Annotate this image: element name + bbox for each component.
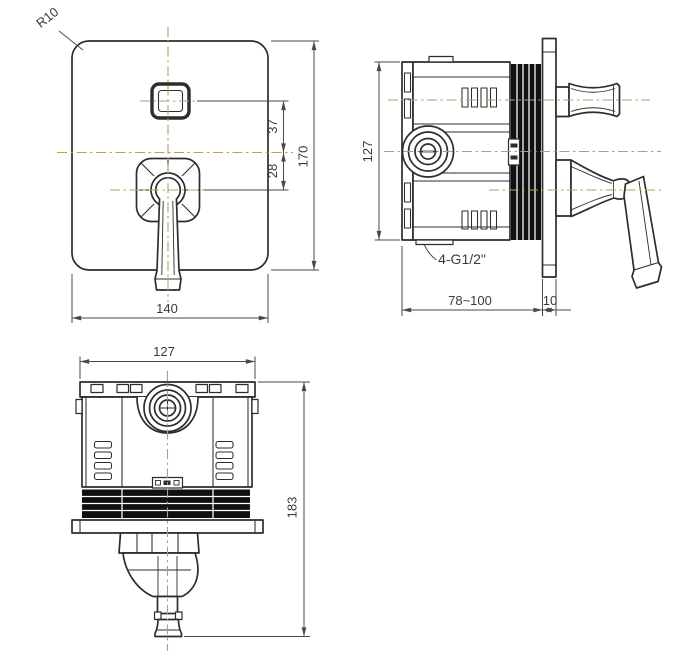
plate-mark: [511, 144, 518, 148]
corner-radius-label: R10: [33, 4, 61, 31]
wall-plate-side: [543, 39, 557, 278]
rail-tab: [131, 385, 143, 393]
thread-leader-line: [424, 245, 437, 261]
bottom-view: 127 183: [72, 344, 310, 651]
lever-tip-cup: [155, 620, 182, 637]
handle-stem-side: [556, 160, 571, 216]
thread-label: 4-G1/2": [438, 251, 486, 267]
rail-tab: [236, 385, 248, 393]
button-stem-side: [556, 87, 569, 117]
lever-tip-tab: [155, 612, 162, 620]
plate-thickness-label: 10: [543, 293, 557, 308]
side-notch: [252, 400, 258, 414]
bottom-width-label: 127: [153, 344, 175, 359]
offset-upper-label: 37: [265, 119, 280, 133]
body-top-tab: [429, 57, 453, 63]
front-view: 140 170 37 28 R10: [33, 4, 319, 323]
front-width-label: 140: [156, 301, 178, 316]
body-bottom-tab: [416, 240, 453, 245]
handle-cone-bottom: [123, 553, 198, 597]
technical-drawing-canvas: 140 170 37 28 R10: [0, 0, 700, 656]
rail-tab: [210, 385, 222, 393]
technical-drawing-page: 140 170 37 28 R10: [0, 0, 700, 656]
rail-tab: [196, 385, 208, 393]
bottom-height-label: 183: [285, 497, 300, 519]
lever-tip-tab: [176, 612, 183, 620]
side-view: 127 78~100 10 4-G1/2": [360, 39, 662, 317]
side-notch: [76, 400, 82, 414]
offset-lower-label: 28: [265, 164, 280, 178]
front-height-label: 170: [296, 146, 311, 168]
side-height-label: 127: [360, 141, 375, 163]
handle-cone-side: [571, 160, 614, 217]
depth-range-label: 78~100: [448, 293, 492, 308]
handle-lever-side: [624, 177, 662, 289]
handle-base-block: [119, 533, 199, 553]
rail-tab: [91, 385, 103, 393]
plate-mark: [511, 156, 518, 160]
rail-tab: [117, 385, 129, 393]
radius-leader-line: [59, 31, 83, 50]
